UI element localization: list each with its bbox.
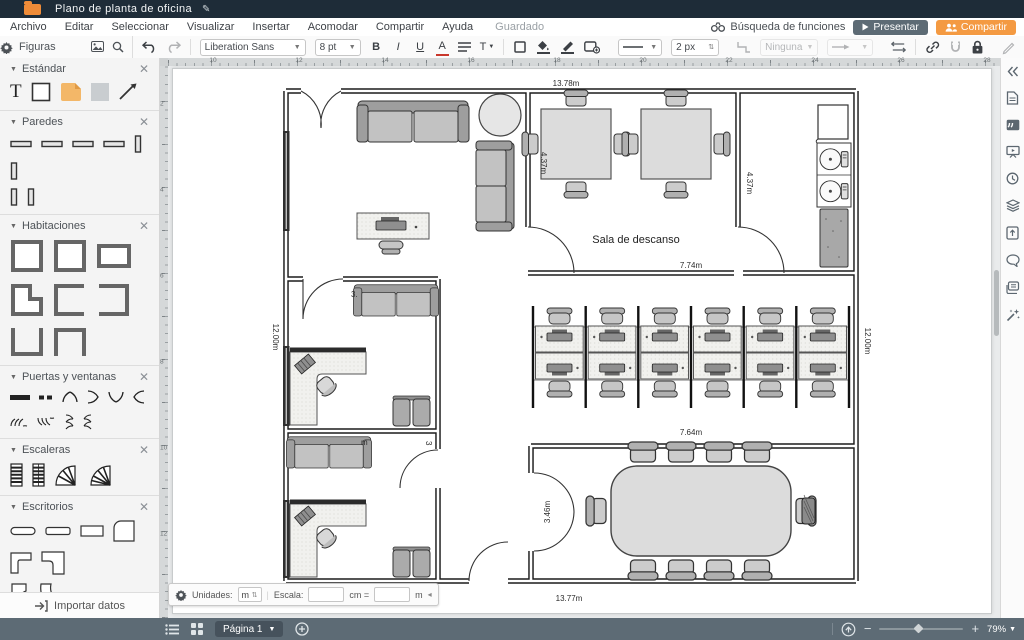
shape-desk-rect[interactable] — [80, 525, 104, 537]
magnet-icon[interactable] — [949, 39, 962, 55]
shape-image-placeholder[interactable] — [91, 83, 109, 101]
import-icon — [34, 600, 48, 612]
menu-acomodar[interactable]: Acomodar — [308, 21, 358, 33]
chevron-down-icon: ▼ — [268, 626, 275, 633]
shapes-panel-label: Figuras — [19, 41, 56, 53]
feedback-icon[interactable] — [1006, 281, 1020, 294]
chevron-down-icon: ▼ — [1009, 626, 1016, 633]
feature-search[interactable]: Búsqueda de funciones — [711, 21, 845, 33]
dim-bottom: 13.77m — [556, 594, 583, 603]
section-paredes: ▼Paredes✕ — [0, 111, 159, 215]
collapse-triangle-icon[interactable]: ▼ — [10, 374, 17, 381]
ruler-left: 2 4 6 8 10 12 — [160, 66, 168, 618]
shape-wall-v[interactable] — [27, 188, 35, 206]
grid-view-icon[interactable] — [191, 623, 203, 635]
layers-icon[interactable] — [1006, 199, 1020, 212]
font-family-select[interactable]: Liberation Sans▼ — [200, 39, 306, 56]
link-icon[interactable] — [925, 39, 940, 55]
shape-room-u[interactable] — [10, 327, 44, 357]
shape-door-left[interactable] — [133, 390, 145, 404]
people-icon — [945, 23, 957, 32]
shape-desk-rounded[interactable] — [45, 526, 71, 536]
vertical-scrollbar[interactable] — [994, 270, 999, 336]
shape-stairs-curved[interactable] — [89, 464, 115, 486]
italic-button[interactable]: I — [392, 39, 405, 55]
shape-stairs-straight[interactable] — [32, 463, 45, 487]
connector-style-select[interactable]: Ninguna▼ — [760, 39, 818, 56]
edit-title-icon[interactable]: ✎ — [202, 4, 210, 15]
units-select[interactable]: m⇅ — [238, 587, 262, 602]
menubar: Archivo Editar Seleccionar Visualizar In… — [0, 18, 1024, 37]
import-data-button[interactable]: Importar datos — [0, 592, 160, 618]
menu-seleccionar[interactable]: Seleccionar — [111, 21, 168, 33]
document-page[interactable]: 13.78m 4.37m 4.37m 7.74m 12.00m 12.00m 7… — [172, 68, 992, 614]
shape-desk-curve[interactable] — [37, 583, 57, 592]
toolbar: Figuras Liberation Sans▼ 8 pt▼ B I U A T… — [0, 36, 1024, 59]
menu-editar[interactable]: Editar — [65, 21, 94, 33]
zoom-slider-thumb[interactable] — [914, 624, 924, 634]
shape-window[interactable] — [10, 394, 30, 401]
shape-door-up[interactable] — [62, 391, 78, 403]
statusbar: Página 1 ▼ − + 79% ▼ — [0, 618, 1024, 640]
shape-wall-h[interactable] — [41, 140, 63, 148]
binoculars-icon — [711, 22, 725, 32]
shape-room-c[interactable] — [53, 283, 87, 317]
shape-door-down[interactable] — [108, 391, 124, 403]
ruler-top: 10 12 14 16 18 20 22 24 26 28 — [168, 58, 1000, 66]
shape-stairs-straight[interactable] — [10, 463, 23, 487]
shape-note[interactable] — [60, 82, 82, 102]
dim-top: 13.78m — [553, 79, 580, 88]
image-icon[interactable] — [91, 41, 104, 52]
comments-icon[interactable] — [1006, 254, 1020, 267]
fill-color-button[interactable] — [536, 39, 551, 55]
close-section-icon[interactable]: ✕ — [139, 500, 149, 514]
page-selector[interactable]: Página 1 ▼ — [215, 621, 283, 637]
floor-plan: 13.78m 4.37m 4.37m 7.74m 12.00m 12.00m 7… — [173, 69, 991, 613]
shape-double-window[interactable] — [39, 394, 53, 401]
font-color-button[interactable]: A — [436, 38, 449, 56]
folder-icon[interactable] — [24, 4, 41, 15]
shape-desk-rounded[interactable] — [10, 526, 36, 536]
scale-m-input[interactable] — [374, 587, 410, 602]
shape-desk-l[interactable] — [10, 552, 32, 574]
shape-line-arrow[interactable] — [118, 83, 138, 101]
line-style-select[interactable]: ▼ — [618, 39, 662, 56]
ruler-corner — [160, 58, 168, 66]
canvas-area[interactable]: 10 12 14 16 18 20 22 24 26 28 2 4 6 8 10… — [160, 58, 1000, 618]
history-icon[interactable] — [1006, 172, 1019, 185]
reception-furniture[interactable] — [357, 94, 521, 254]
dim-break-left: 4.37m — [539, 152, 548, 175]
shape-room-c-mirror[interactable] — [96, 283, 130, 317]
menu-visualizar[interactable]: Visualizar — [187, 21, 235, 33]
collapse-triangle-icon[interactable]: ▼ — [10, 447, 17, 454]
meeting-room[interactable] — [586, 442, 816, 580]
shape-room-square[interactable] — [53, 239, 87, 273]
shape-stairs-curved[interactable] — [54, 464, 80, 486]
zoom-out-button[interactable]: − — [864, 624, 872, 634]
collapse-arrow-icon[interactable]: ◂ — [428, 590, 432, 599]
font-size-select[interactable]: 8 pt▼ — [315, 39, 361, 56]
shape-wall-v[interactable] — [10, 162, 18, 180]
shape-wall-v[interactable] — [10, 188, 18, 206]
swap-arrows-icon[interactable] — [891, 39, 906, 55]
titlebar: Plano de planta de oficina ✎ — [0, 0, 1024, 18]
zoom-level[interactable]: 79% ▼ — [987, 624, 1016, 635]
shape-room-l[interactable] — [10, 283, 44, 317]
close-section-icon[interactable]: ✕ — [139, 443, 149, 457]
dim-cubicles: 7.64m — [680, 428, 703, 437]
saved-status: Guardado — [495, 21, 544, 33]
bathroom[interactable] — [816, 105, 851, 267]
shapes-gear-icon[interactable] — [0, 41, 13, 54]
section-escritorios: ▼Escritorios✕ — [0, 496, 159, 592]
underline-button[interactable]: U — [414, 39, 427, 55]
notes-panel-icon[interactable] — [1006, 119, 1020, 131]
document-title: Plano de planta de oficina — [55, 3, 192, 15]
collapse-triangle-icon[interactable]: ▼ — [10, 223, 17, 230]
share-button[interactable]: Compartir — [936, 20, 1016, 35]
arrowhead-select[interactable]: ▼ — [827, 39, 873, 56]
shapes-sidebar: ▼Estándar✕ T ▼Paredes✕ — [0, 58, 160, 592]
dim-meeting-door: 3.46m — [543, 501, 552, 524]
line-color-button[interactable] — [560, 39, 575, 55]
section-escaleras: ▼Escaleras✕ — [0, 439, 159, 496]
unit-suffix: m — [415, 590, 423, 600]
break-room[interactable] — [522, 90, 730, 198]
shape-wall-v[interactable] — [134, 135, 142, 153]
shape-desk-blob[interactable] — [10, 583, 28, 592]
undo-button[interactable] — [142, 39, 157, 55]
collapse-triangle-icon[interactable]: ▼ — [10, 119, 17, 126]
menu-insertar[interactable]: Insertar — [252, 21, 289, 33]
close-section-icon[interactable]: ✕ — [139, 370, 149, 384]
close-section-icon[interactable]: ✕ — [139, 115, 149, 129]
shape-double-door-up[interactable] — [10, 417, 28, 427]
shapes-panel-header: Figuras — [0, 36, 133, 58]
shape-desk-quarter[interactable] — [113, 520, 135, 542]
lock-icon[interactable] — [971, 39, 984, 55]
menu-ayuda[interactable]: Ayuda — [442, 21, 473, 33]
reception-desk — [357, 213, 429, 254]
dim-right: 12.00m — [863, 328, 872, 355]
collapse-triangle-icon[interactable]: ▼ — [10, 66, 17, 73]
collapse-triangle-icon[interactable]: ▼ — [10, 504, 17, 511]
dim-break-bottom: 7.74m — [680, 261, 703, 270]
shape-wall-h[interactable] — [72, 140, 94, 148]
section-habitaciones: ▼Habitaciones✕ — [0, 215, 159, 366]
bold-button[interactable]: B — [370, 39, 383, 55]
right-dock — [1000, 58, 1024, 618]
magic-wand-icon[interactable] — [1006, 308, 1020, 322]
shape-rectangle[interactable] — [31, 82, 51, 102]
zoom-fit-icon[interactable] — [841, 622, 856, 637]
search-icon[interactable] — [112, 41, 124, 53]
zoom-in-button[interactable]: + — [971, 624, 979, 634]
windows[interactable] — [283, 131, 290, 578]
play-icon — [862, 23, 869, 31]
shape-style-button[interactable] — [513, 39, 527, 55]
section-puertas-ventanas: ▼Puertas y ventanas✕ — [0, 366, 159, 439]
shape-wall-h[interactable] — [10, 140, 32, 148]
room-label: Sala de descanso — [592, 234, 679, 246]
document-panel-icon[interactable] — [1006, 91, 1019, 105]
menu-compartir[interactable]: Compartir — [376, 21, 424, 33]
present-button[interactable]: Presentar — [853, 20, 928, 35]
conditional-format-icon[interactable] — [584, 39, 600, 55]
section-estandar: ▼Estándar✕ T — [0, 58, 159, 111]
zoom-slider[interactable] — [879, 628, 963, 630]
shape-double-door-left[interactable] — [83, 414, 93, 430]
close-section-icon[interactable]: ✕ — [139, 219, 149, 233]
equals-label: cm = — [349, 590, 369, 600]
text-options-button[interactable]: T▼ — [480, 39, 495, 55]
line-width-stepper[interactable]: 2 px⇅ — [671, 39, 719, 56]
dim-office-b: 3 — [424, 441, 433, 446]
units-label: Unidades: — [192, 590, 233, 600]
list-view-icon[interactable] — [165, 624, 179, 635]
shape-double-door-right[interactable] — [64, 414, 74, 430]
shape-room-square[interactable] — [10, 239, 44, 273]
dim-left: 12.00m — [271, 324, 280, 351]
menu-archivo[interactable]: Archivo — [10, 21, 47, 33]
collapse-panel-icon[interactable] — [1007, 66, 1019, 77]
office-1[interactable] — [290, 285, 439, 426]
cubicles[interactable] — [533, 306, 849, 408]
shape-room-n[interactable] — [53, 327, 87, 357]
scale-cm-input[interactable] — [308, 587, 344, 602]
shape-room-wide[interactable] — [96, 243, 132, 269]
text-align-button[interactable] — [458, 39, 471, 55]
dim-break-right: 4.37m — [745, 172, 754, 195]
scale-label: Escala: — [274, 590, 304, 600]
draw-pen-icon[interactable] — [1002, 39, 1015, 55]
close-section-icon[interactable]: ✕ — [139, 62, 149, 76]
redo-button[interactable] — [166, 39, 181, 55]
connector-type-icon[interactable] — [737, 39, 751, 55]
dim-office-c: m — [361, 438, 368, 447]
office-2[interactable] — [286, 437, 430, 577]
shape-desk-l2[interactable] — [41, 551, 65, 575]
import-export-panel-icon[interactable] — [1006, 226, 1019, 240]
corner-sofa — [476, 141, 514, 231]
shape-wall-h[interactable] — [103, 140, 125, 148]
shape-door-right[interactable] — [87, 390, 99, 404]
scale-widget: Unidades: m⇅ | Escala: cm = m ◂ — [168, 583, 439, 606]
add-page-icon[interactable] — [295, 622, 309, 636]
shape-double-door-down[interactable] — [37, 417, 55, 427]
present-panel-icon[interactable] — [1006, 145, 1020, 158]
shape-text[interactable]: T — [10, 82, 22, 102]
gear-icon[interactable] — [175, 589, 187, 601]
dim-office-a: 3. — [351, 290, 358, 299]
app-window: Plano de planta de oficina ✎ Archivo Edi… — [0, 0, 1024, 640]
